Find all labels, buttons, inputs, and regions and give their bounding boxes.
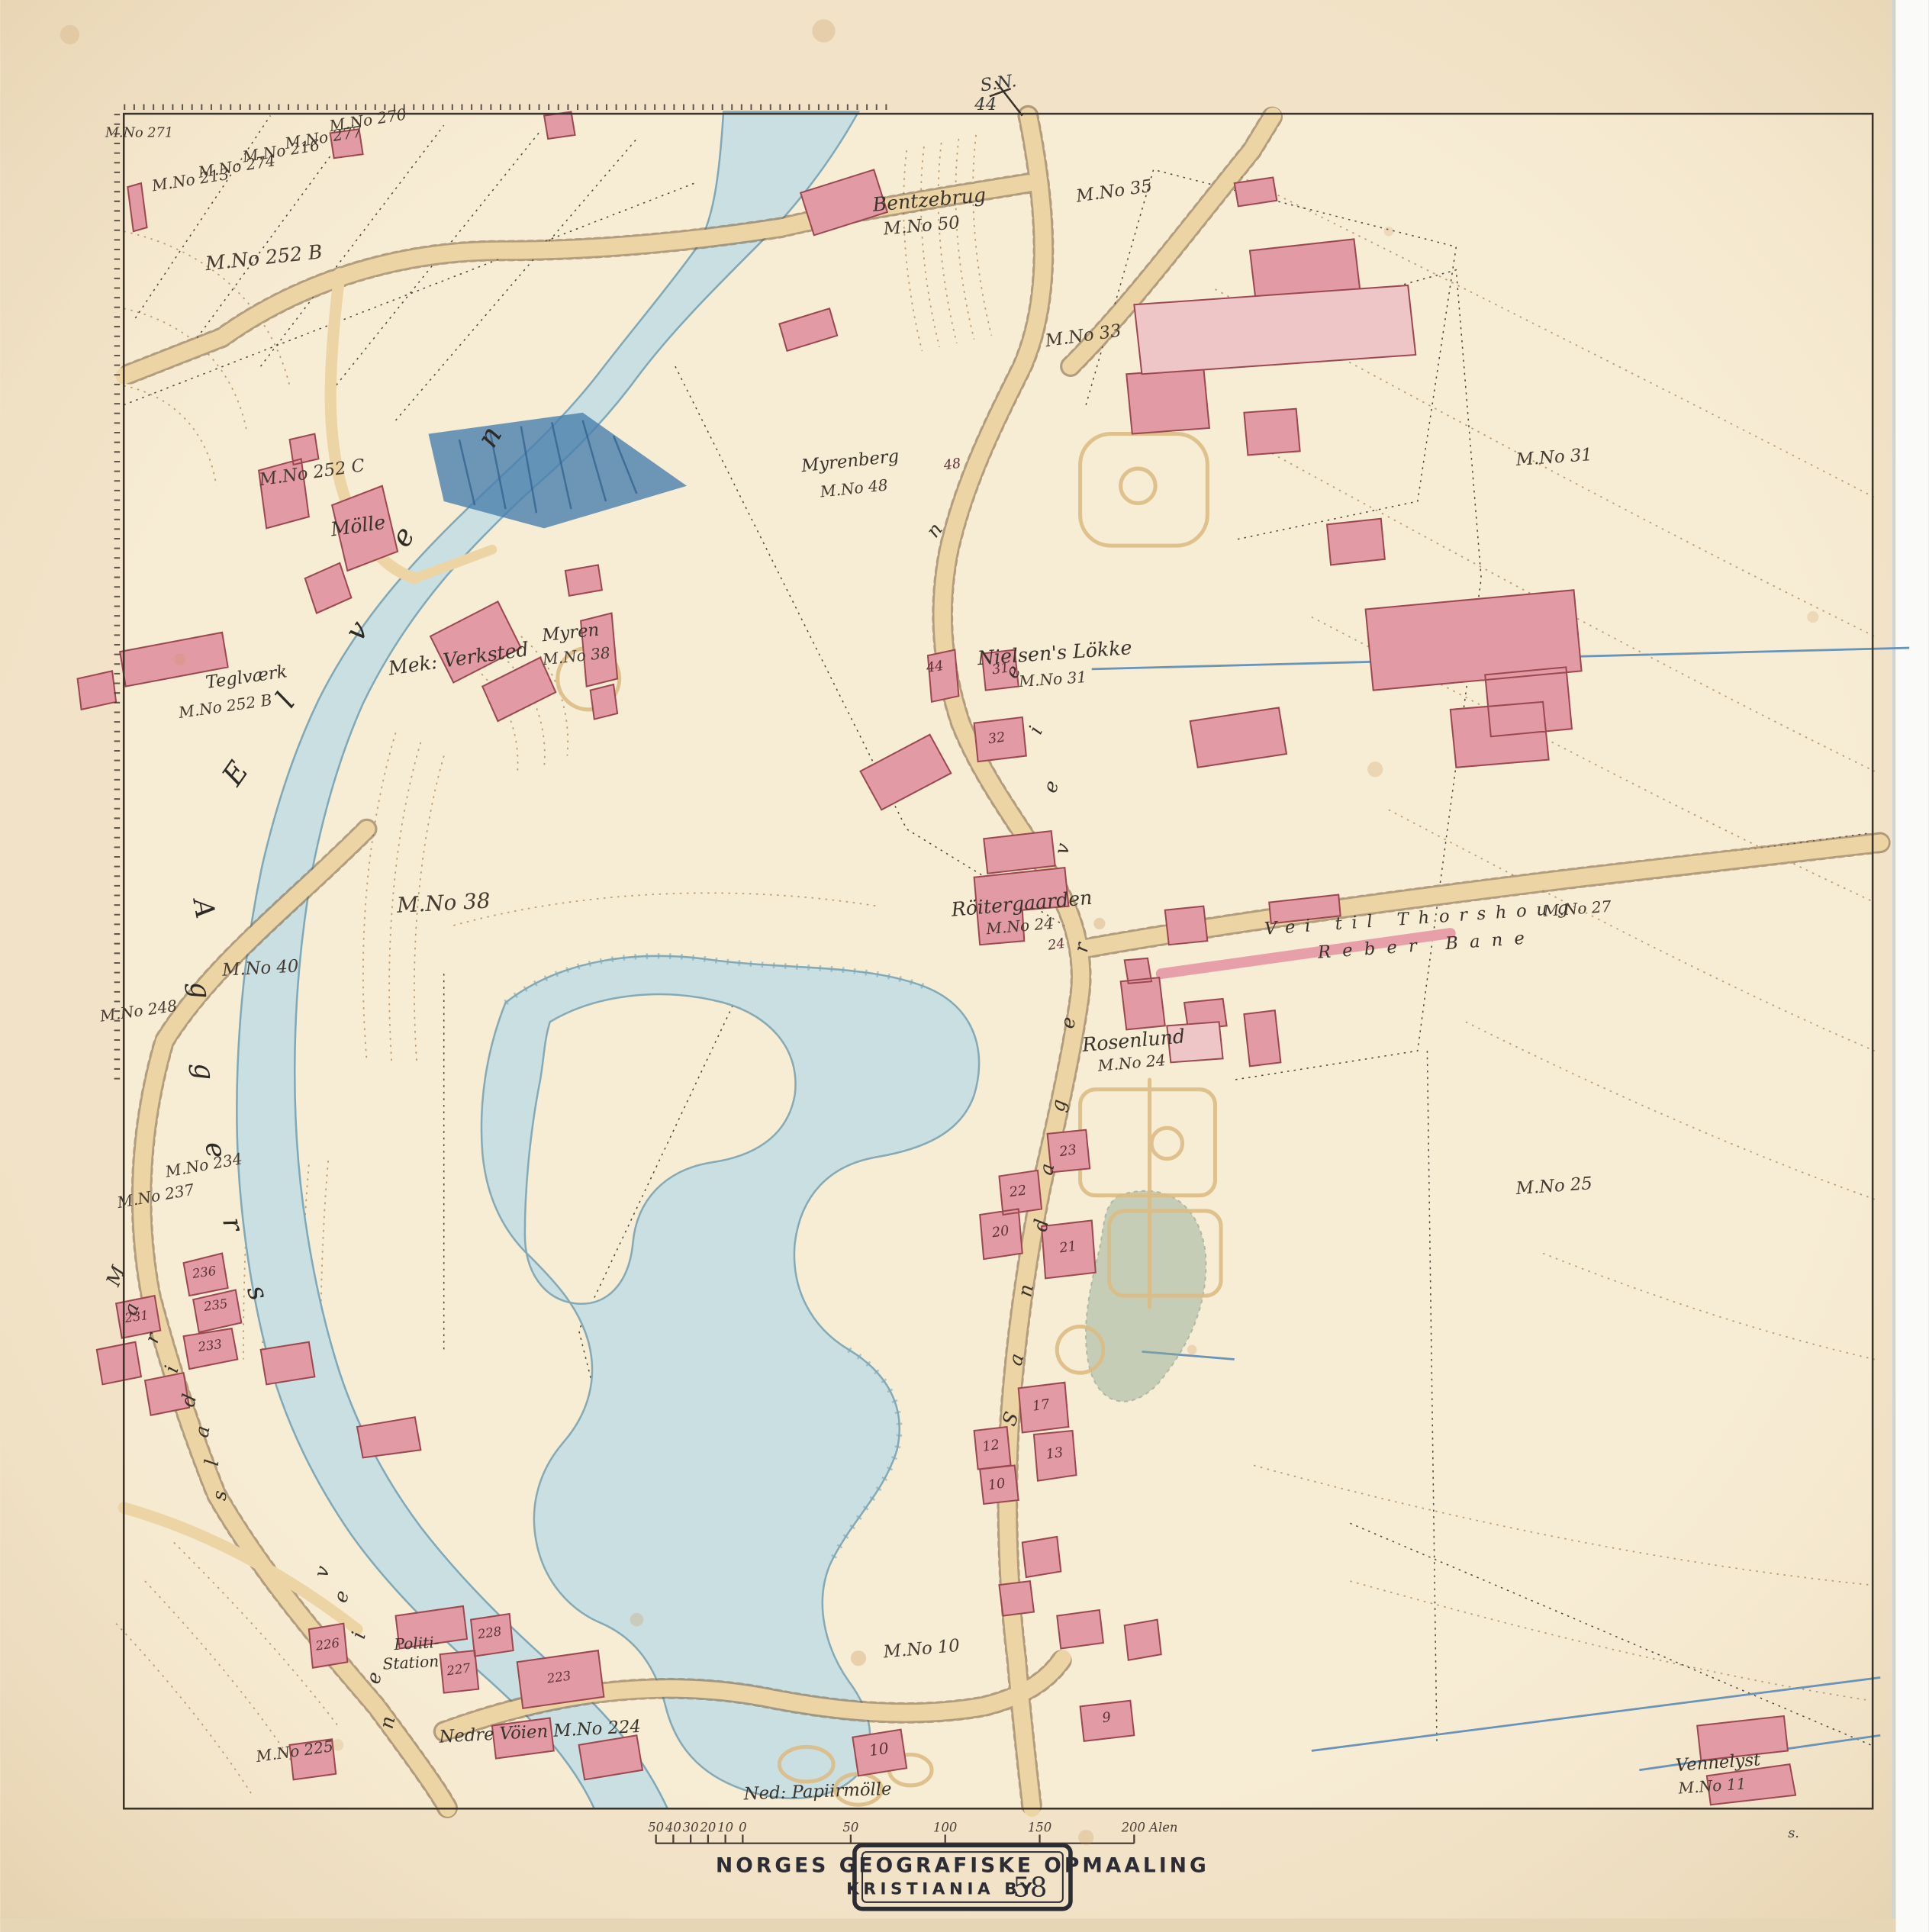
map-canvas: NORGES GEOGRAFISKE OPMAALING KRISTIANIA … xyxy=(0,0,1929,1932)
scanned-map-sheet: NORGES GEOGRAFISKE OPMAALING KRISTIANIA … xyxy=(0,0,1929,1932)
scanner-edge xyxy=(1896,0,1929,1932)
cartouche-city: KRISTIANIA BY xyxy=(846,1880,1036,1899)
cartouche-title: NORGES GEOGRAFISKE OPMAALING xyxy=(716,1854,1209,1878)
cartouche-sheet-number: 58 xyxy=(1013,1872,1047,1903)
